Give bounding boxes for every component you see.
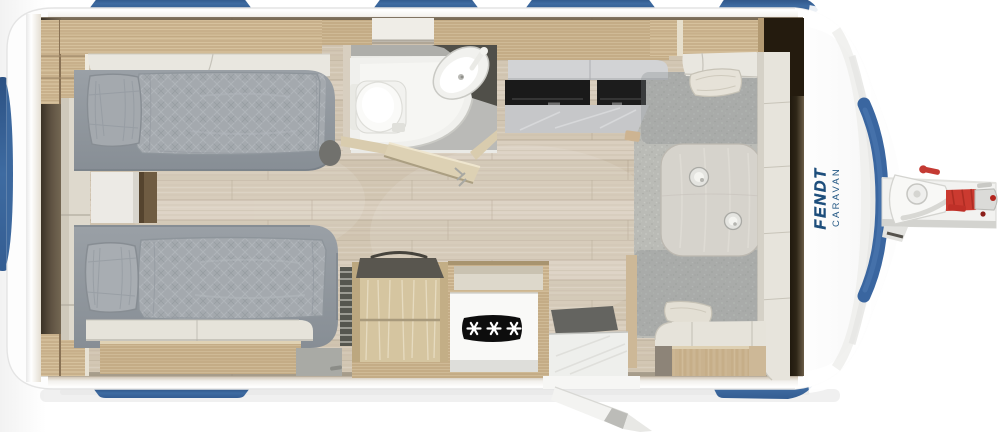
svg-text:FENDT: FENDT (813, 167, 830, 229)
svg-text:CARAVAN: CARAVAN (831, 167, 842, 227)
